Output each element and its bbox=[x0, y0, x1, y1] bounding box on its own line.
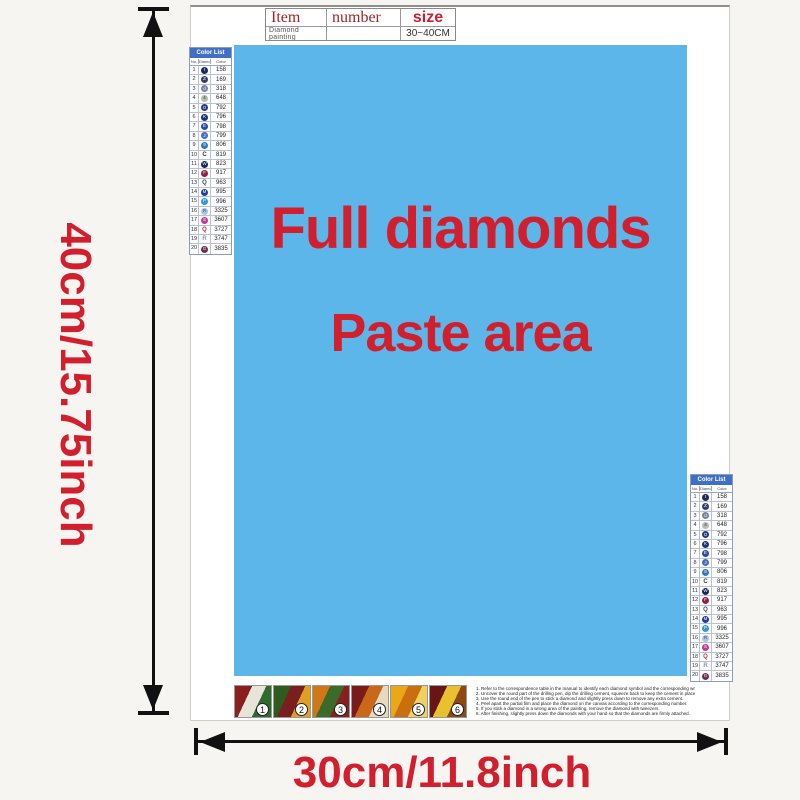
color-row-number: 18 bbox=[691, 653, 700, 661]
color-row-number: 2 bbox=[190, 75, 199, 83]
color-code: 819 bbox=[211, 152, 231, 158]
color-row-number: 19 bbox=[190, 235, 199, 243]
color-code: 806 bbox=[211, 142, 231, 148]
diamond-symbol-icon: S bbox=[199, 216, 211, 224]
diamond-symbol-icon: 4 bbox=[700, 521, 712, 529]
color-list-header-diamond: Diamond bbox=[199, 59, 211, 64]
item-table-cell-name: Diamond painting bbox=[266, 27, 327, 40]
color-list-row: 17S3607 bbox=[190, 216, 231, 225]
item-table-header-size: size bbox=[401, 9, 455, 27]
diamond-symbol-icon: Q bbox=[199, 179, 211, 187]
diamond-symbol-icon: R bbox=[700, 662, 712, 670]
arrow-down-icon bbox=[143, 685, 163, 710]
color-row-number: 12 bbox=[190, 169, 199, 177]
color-code: 917 bbox=[211, 170, 231, 176]
color-list-row: 13Q963 bbox=[190, 179, 231, 188]
diamond-symbol-icon: R bbox=[199, 207, 211, 215]
color-code: 3835 bbox=[211, 246, 231, 252]
item-table-header-number: number bbox=[327, 9, 401, 27]
color-list-row: 7E798 bbox=[691, 549, 732, 558]
color-code: 3727 bbox=[211, 227, 231, 233]
color-code: 798 bbox=[712, 551, 732, 557]
color-row-number: 3 bbox=[691, 512, 700, 520]
step-photo: 3 bbox=[312, 685, 350, 718]
color-list-row: 10C819 bbox=[691, 578, 732, 587]
diamond-symbol-icon: P bbox=[700, 624, 712, 632]
color-code: 169 bbox=[211, 77, 231, 83]
diamond-symbol-icon: d bbox=[199, 85, 211, 93]
color-row-number: 6 bbox=[190, 113, 199, 121]
color-list-row: 5O792 bbox=[691, 531, 732, 540]
color-row-number: 1 bbox=[691, 493, 700, 501]
color-list-row: 11W823 bbox=[190, 160, 231, 169]
diamond-symbol-icon: 4 bbox=[199, 94, 211, 102]
product-size-diagram: Item number size Diamond painting 30~40C… bbox=[0, 0, 800, 800]
color-row-number: 14 bbox=[691, 615, 700, 623]
diamond-symbol-icon: R bbox=[199, 235, 211, 243]
step-photo: 6 bbox=[429, 685, 467, 718]
color-code: 3607 bbox=[211, 217, 231, 223]
color-list-header-no: No. bbox=[190, 59, 199, 64]
arrow-left-icon bbox=[200, 732, 225, 752]
color-list-row: 19R3747 bbox=[190, 235, 231, 244]
color-row-number: 4 bbox=[190, 94, 199, 102]
color-list-row: 2Z169 bbox=[691, 502, 732, 511]
color-row-number: 16 bbox=[691, 634, 700, 642]
color-list-title: Color List bbox=[190, 48, 231, 58]
color-row-number: 20 bbox=[691, 671, 700, 680]
color-code: 995 bbox=[712, 616, 732, 622]
color-code: 823 bbox=[211, 161, 231, 167]
color-row-number: 20 bbox=[190, 244, 199, 253]
step-number-badge: 3 bbox=[334, 703, 347, 716]
color-code: 917 bbox=[712, 597, 732, 603]
diamond-symbol-icon: Z bbox=[700, 502, 712, 510]
item-table-cell-size: 30~40CM bbox=[401, 27, 455, 40]
color-row-number: 16 bbox=[190, 207, 199, 215]
paste-area: Full diamonds Paste area bbox=[234, 45, 687, 676]
color-list-row: 6K796 bbox=[190, 113, 231, 122]
diamond-symbol-icon: K bbox=[700, 540, 712, 548]
diamond-symbol-icon: C bbox=[199, 151, 211, 159]
color-list-header-color: Color bbox=[712, 486, 732, 491]
color-row-number: 9 bbox=[691, 568, 700, 576]
diamond-symbol-icon: 9 bbox=[700, 568, 712, 576]
color-row-number: 18 bbox=[190, 226, 199, 234]
diamond-symbol-icon: F bbox=[199, 169, 211, 177]
arrow-up-icon bbox=[143, 12, 163, 37]
color-list-title: Color List bbox=[691, 475, 732, 485]
step-number-badge: 4 bbox=[373, 703, 386, 716]
color-row-number: 13 bbox=[691, 606, 700, 614]
color-row-number: 5 bbox=[190, 104, 199, 112]
instructions-text: 1. Refer to the correspondence table in … bbox=[476, 686, 695, 716]
color-row-number: 17 bbox=[691, 643, 700, 651]
color-row-number: 10 bbox=[691, 578, 700, 586]
height-arrow-line bbox=[152, 10, 155, 712]
diamond-symbol-icon: E bbox=[199, 122, 211, 130]
diamond-symbol-icon: Q bbox=[700, 653, 712, 661]
color-code: 648 bbox=[211, 95, 231, 101]
step-photo: 4 bbox=[351, 685, 389, 718]
color-list-row: 10C819 bbox=[190, 151, 231, 160]
color-list-row: 44648 bbox=[691, 521, 732, 530]
color-code: 318 bbox=[211, 86, 231, 92]
color-list-right: Color List No. Diamond Color 1t1582Z1693… bbox=[690, 474, 733, 682]
diamond-symbol-icon: R bbox=[700, 634, 712, 642]
diamond-symbol-icon: P bbox=[199, 197, 211, 205]
color-list-row: 44648 bbox=[190, 94, 231, 103]
diamond-symbol-icon: O bbox=[700, 531, 712, 539]
color-code: 799 bbox=[712, 560, 732, 566]
color-code: 963 bbox=[712, 607, 732, 613]
color-code: 3747 bbox=[712, 663, 732, 669]
color-row-number: 8 bbox=[190, 132, 199, 140]
color-list-row: 18Q3727 bbox=[190, 226, 231, 235]
paste-area-title-line1: Full diamonds bbox=[234, 195, 687, 262]
diamond-symbol-icon: S bbox=[700, 643, 712, 651]
color-code: 318 bbox=[712, 513, 732, 519]
color-list-row: 99806 bbox=[691, 568, 732, 577]
color-row-number: 6 bbox=[691, 540, 700, 548]
width-arrow-line bbox=[197, 740, 725, 743]
color-code: 3747 bbox=[211, 236, 231, 242]
width-arrow-right-cap bbox=[724, 728, 728, 755]
color-code: 792 bbox=[211, 105, 231, 111]
step-number-badge: 6 bbox=[451, 703, 464, 716]
color-row-number: 12 bbox=[691, 596, 700, 604]
color-row-number: 14 bbox=[190, 188, 199, 196]
color-code: 3607 bbox=[712, 644, 732, 650]
color-code: 3727 bbox=[712, 654, 732, 660]
color-row-number: 1 bbox=[190, 66, 199, 74]
color-list-row: 16R3325 bbox=[190, 207, 231, 216]
item-info-table: Item number size Diamond painting 30~40C… bbox=[265, 8, 456, 41]
diamond-symbol-icon: J bbox=[199, 132, 211, 140]
color-row-number: 10 bbox=[190, 151, 199, 159]
diamond-symbol-icon: d bbox=[700, 512, 712, 520]
step-number-badge: 1 bbox=[256, 703, 269, 716]
color-row-number: 7 bbox=[691, 549, 700, 557]
color-list-row: 18Q3727 bbox=[691, 653, 732, 662]
color-list-row: 2Z169 bbox=[190, 75, 231, 84]
paste-area-title-line2: Paste area bbox=[234, 302, 687, 364]
width-dimension-label: 30cm/11.8inch bbox=[272, 748, 612, 798]
color-list-row: 12F917 bbox=[190, 169, 231, 178]
color-list-row: 15P996 bbox=[190, 197, 231, 206]
color-code: 799 bbox=[211, 133, 231, 139]
diamond-symbol-icon: K bbox=[199, 113, 211, 121]
diamond-symbol-icon: G bbox=[700, 671, 712, 680]
step-number-badge: 2 bbox=[295, 703, 308, 716]
color-list-row: 8J799 bbox=[190, 132, 231, 141]
color-row-number: 9 bbox=[190, 141, 199, 149]
color-list-row: 1t158 bbox=[190, 66, 231, 75]
color-list-row: 16R3325 bbox=[691, 634, 732, 643]
step-photo: 5 bbox=[390, 685, 428, 718]
color-row-number: 5 bbox=[691, 531, 700, 539]
color-list-row: 7E798 bbox=[190, 122, 231, 131]
color-code: 158 bbox=[712, 494, 732, 500]
diamond-symbol-icon: G bbox=[199, 244, 211, 253]
color-list-left: Color List No. Diamond Color 1t1582Z1693… bbox=[189, 47, 232, 255]
color-list-row: 17S3607 bbox=[691, 643, 732, 652]
color-list-row: 1t158 bbox=[691, 493, 732, 502]
color-list-row: 5O792 bbox=[190, 104, 231, 113]
steps-photo-strip: 123456 bbox=[234, 685, 468, 718]
diamond-symbol-icon: Q bbox=[199, 226, 211, 234]
diamond-symbol-icon: O bbox=[199, 104, 211, 112]
color-row-number: 7 bbox=[190, 122, 199, 130]
color-row-number: 4 bbox=[691, 521, 700, 529]
color-list-row: 11W823 bbox=[691, 587, 732, 596]
diamond-symbol-icon: W bbox=[700, 587, 712, 595]
item-table-header-item: Item bbox=[266, 9, 327, 27]
color-list-row: 3d318 bbox=[190, 85, 231, 94]
instruction-line: 6. After finishing, slightly press down … bbox=[476, 711, 695, 716]
diamond-symbol-icon: t bbox=[199, 66, 211, 74]
color-code: 806 bbox=[712, 569, 732, 575]
diamond-symbol-icon: F bbox=[700, 596, 712, 604]
color-list-header-color: Color bbox=[211, 59, 231, 64]
color-code: 963 bbox=[211, 180, 231, 186]
height-arrow-bottom-cap bbox=[138, 711, 169, 715]
color-row-number: 2 bbox=[691, 502, 700, 510]
color-list-row: 14M995 bbox=[190, 188, 231, 197]
width-arrow-left-cap bbox=[194, 728, 198, 755]
color-code: 648 bbox=[712, 522, 732, 528]
diamond-symbol-icon: C bbox=[700, 578, 712, 586]
color-code: 996 bbox=[712, 626, 732, 632]
color-row-number: 3 bbox=[190, 85, 199, 93]
color-list-row: 8J799 bbox=[691, 559, 732, 568]
color-code: 3325 bbox=[712, 635, 732, 641]
color-list-row: 6K796 bbox=[691, 540, 732, 549]
height-arrow-top-cap bbox=[138, 7, 169, 11]
color-row-number: 15 bbox=[190, 197, 199, 205]
diamond-symbol-icon: t bbox=[700, 493, 712, 501]
color-list-row: 99806 bbox=[190, 141, 231, 150]
diamond-symbol-icon: E bbox=[700, 549, 712, 557]
height-dimension-label: 40cm/15.75inch bbox=[50, 215, 100, 555]
color-list-row: 20G3835 bbox=[691, 671, 732, 680]
color-code: 796 bbox=[712, 541, 732, 547]
color-row-number: 15 bbox=[691, 624, 700, 632]
color-code: 996 bbox=[211, 199, 231, 205]
color-code: 798 bbox=[211, 124, 231, 130]
color-code: 792 bbox=[712, 532, 732, 538]
color-code: 819 bbox=[712, 579, 732, 585]
color-row-number: 11 bbox=[190, 160, 199, 168]
color-list-row: 12F917 bbox=[691, 596, 732, 605]
color-list-header-no: No. bbox=[691, 486, 700, 491]
item-table-cell-number bbox=[327, 27, 401, 40]
diamond-symbol-icon: M bbox=[199, 188, 211, 196]
step-photo: 1 bbox=[234, 685, 272, 718]
color-list-row: 20G3835 bbox=[190, 244, 231, 253]
diamond-symbol-icon: Q bbox=[700, 606, 712, 614]
color-row-number: 13 bbox=[190, 179, 199, 187]
color-list-row: 19R3747 bbox=[691, 662, 732, 671]
color-row-number: 11 bbox=[691, 587, 700, 595]
color-code: 3835 bbox=[712, 673, 732, 679]
color-code: 158 bbox=[211, 67, 231, 73]
color-code: 823 bbox=[712, 588, 732, 594]
arrow-right-icon bbox=[697, 732, 722, 752]
color-code: 995 bbox=[211, 189, 231, 195]
diamond-symbol-icon: J bbox=[700, 559, 712, 567]
color-list-row: 3d318 bbox=[691, 512, 732, 521]
color-list-header-row: No. Diamond Color bbox=[190, 58, 231, 66]
color-row-number: 19 bbox=[691, 662, 700, 670]
diamond-symbol-icon: Z bbox=[199, 75, 211, 83]
color-list-row: 13Q963 bbox=[691, 606, 732, 615]
color-code: 3325 bbox=[211, 208, 231, 214]
color-code: 169 bbox=[712, 504, 732, 510]
step-number-badge: 5 bbox=[412, 703, 425, 716]
color-list-row: 15P996 bbox=[691, 624, 732, 633]
diamond-symbol-icon: M bbox=[700, 615, 712, 623]
color-row-number: 8 bbox=[691, 559, 700, 567]
color-row-number: 17 bbox=[190, 216, 199, 224]
color-list-header-diamond: Diamond bbox=[700, 486, 712, 491]
diamond-symbol-icon: W bbox=[199, 160, 211, 168]
color-list-row: 14M995 bbox=[691, 615, 732, 624]
step-photo: 2 bbox=[273, 685, 311, 718]
color-code: 796 bbox=[211, 114, 231, 120]
diamond-symbol-icon: 9 bbox=[199, 141, 211, 149]
color-list-header-row: No. Diamond Color bbox=[691, 485, 732, 493]
